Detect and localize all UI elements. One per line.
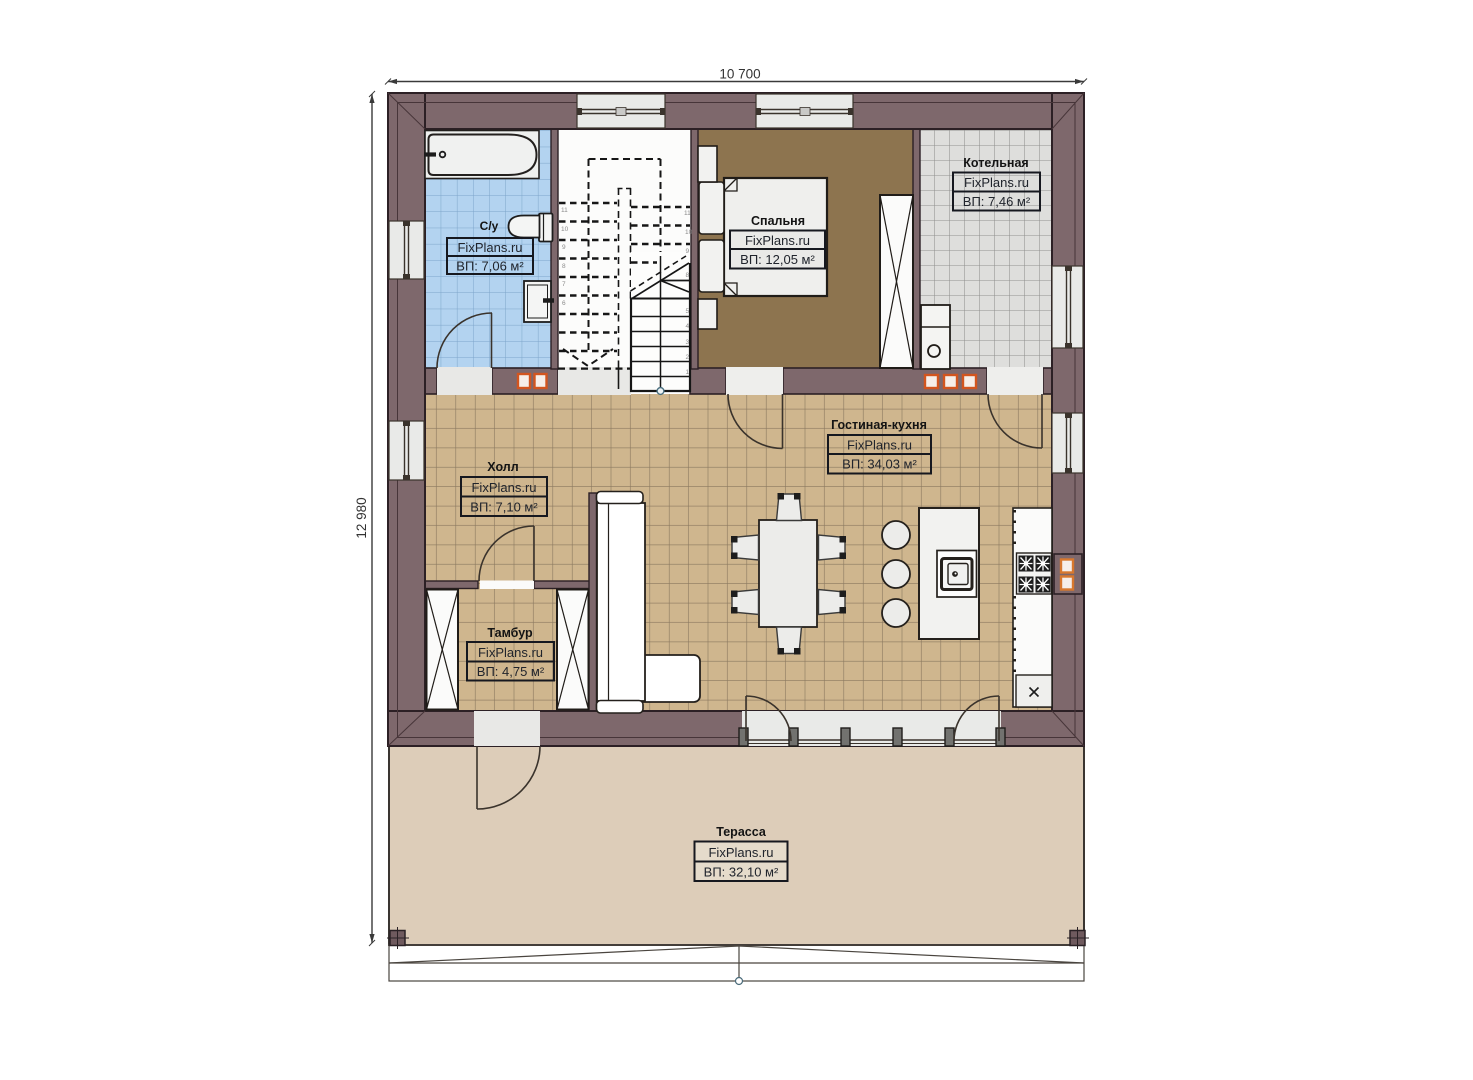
svg-text:ВП: 4,75 м²: ВП: 4,75 м²	[477, 664, 545, 679]
svg-text:6: 6	[562, 300, 566, 307]
svg-text:Холл: Холл	[487, 460, 518, 474]
svg-text:11: 11	[684, 210, 691, 217]
svg-text:ВП: 32,10 м²: ВП: 32,10 м²	[704, 865, 779, 880]
svg-text:FixPlans.ru: FixPlans.ru	[471, 480, 536, 495]
svg-text:ВП: 7,46 м²: ВП: 7,46 м²	[963, 194, 1031, 209]
svg-text:10: 10	[685, 229, 693, 236]
svg-text:8: 8	[562, 263, 566, 270]
svg-text:ВП: 34,03 м²: ВП: 34,03 м²	[842, 457, 917, 472]
svg-text:10 700: 10 700	[719, 67, 760, 82]
svg-text:FixPlans.ru: FixPlans.ru	[708, 845, 773, 860]
svg-text:9: 9	[562, 244, 566, 251]
svg-text:Котельная: Котельная	[963, 156, 1028, 170]
svg-text:2: 2	[686, 354, 690, 361]
svg-text:Терасса: Терасса	[716, 825, 767, 839]
svg-text:4: 4	[686, 323, 690, 330]
svg-text:9: 9	[686, 248, 690, 255]
svg-text:ВП: 12,05 м²: ВП: 12,05 м²	[740, 252, 815, 267]
svg-text:С/у: С/у	[480, 219, 499, 233]
svg-text:Тамбур: Тамбур	[487, 626, 533, 640]
svg-text:ВП: 7,10 м²: ВП: 7,10 м²	[470, 500, 538, 515]
svg-text:1: 1	[686, 369, 690, 376]
svg-text:7: 7	[562, 281, 566, 288]
svg-text:11: 11	[561, 207, 568, 214]
svg-text:FixPlans.ru: FixPlans.ru	[847, 438, 912, 453]
svg-text:Спальня: Спальня	[751, 214, 805, 228]
svg-text:3: 3	[686, 339, 690, 346]
svg-text:8: 8	[686, 272, 690, 279]
svg-text:FixPlans.ru: FixPlans.ru	[457, 240, 522, 255]
svg-text:FixPlans.ru: FixPlans.ru	[745, 233, 810, 248]
svg-text:5: 5	[686, 308, 690, 315]
svg-text:FixPlans.ru: FixPlans.ru	[478, 645, 543, 660]
svg-text:10: 10	[561, 226, 569, 233]
svg-text:12 980: 12 980	[354, 497, 369, 538]
svg-text:ВП: 7,06 м²: ВП: 7,06 м²	[456, 259, 524, 274]
svg-text:FixPlans.ru: FixPlans.ru	[964, 175, 1029, 190]
svg-text:Гостиная-кухня: Гостиная-кухня	[831, 418, 927, 432]
